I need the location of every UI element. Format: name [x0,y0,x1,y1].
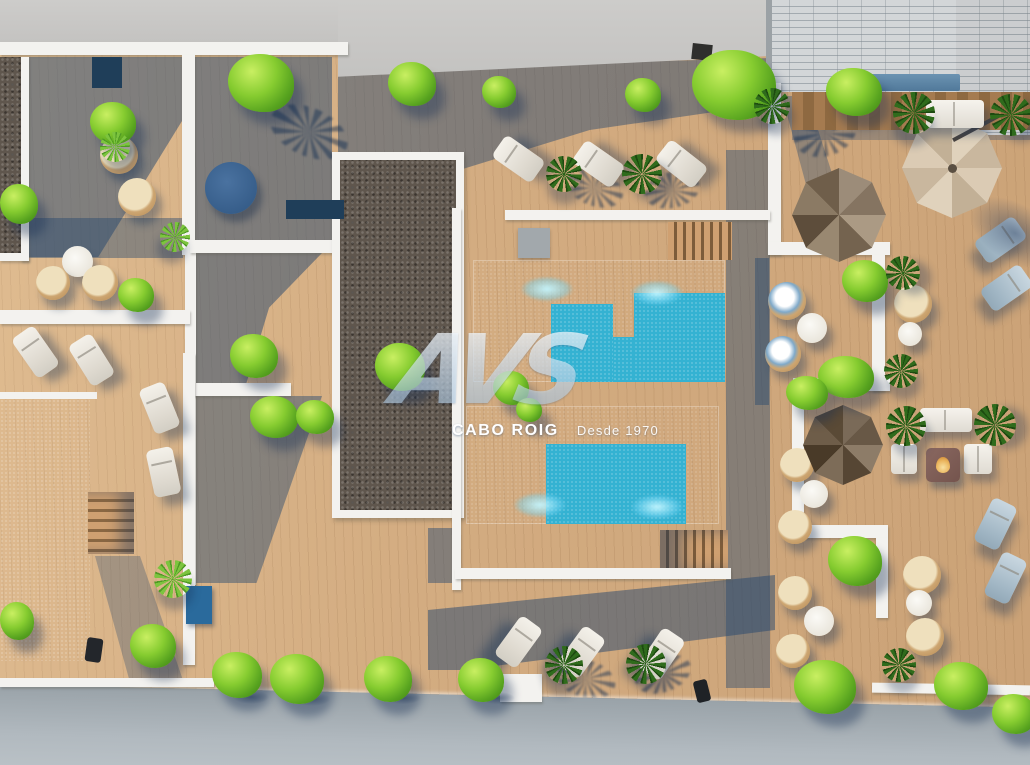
bush [828,536,882,586]
bush [842,260,888,302]
deck-chair-black [84,637,103,663]
round-table-shaded [205,162,257,214]
white-parapet-wall [193,383,291,396]
gravel-bed-border [21,57,29,261]
round-table [800,480,828,508]
sun-lounger [11,325,61,380]
wicker-chair [118,178,156,216]
round-table [797,313,827,343]
wicker-chair [906,618,944,656]
fire-pit-table [926,448,960,482]
white-parapet-wall [0,42,348,55]
wicker-chair [903,556,941,594]
rooftop-aerial-render: AVS CABO ROIG Desde 1970 [0,0,1030,765]
water-light-reflection [621,276,693,310]
bush [388,62,436,106]
sun-lounger [138,381,181,436]
deck-steps [668,222,732,260]
sun-lounger [67,332,115,387]
white-parapet-wall [190,240,336,253]
lap-pool-coping [0,392,97,399]
sun-lounger [973,497,1018,552]
bush [250,396,298,438]
bush [230,334,278,378]
terrace-doorway [92,57,122,88]
shade-overlay [428,570,775,670]
sun-lounger [983,551,1028,606]
wicker-chair [82,265,118,301]
bush [482,76,516,108]
white-parapet-wall [0,310,190,324]
equipment-mat [518,228,550,258]
bush [270,654,324,704]
bush [934,662,988,710]
gravel-bed-border [0,253,29,261]
spiral-staircase [803,405,883,485]
watermark-logo: AVS CABO ROIG Desde 1970 [402,316,702,440]
wicker-chair [776,634,810,668]
wicker-chair [778,576,812,610]
wicker-chair [36,266,70,300]
storage-bench [286,200,344,219]
brand-monogram: AVS [402,316,592,421]
wicker-chair-cushioned [768,282,806,320]
outdoor-armchair [964,444,992,474]
bush [794,660,856,714]
round-table [906,590,932,616]
sun-lounger [145,446,181,499]
wicker-chair [778,510,812,544]
bush [826,68,882,116]
shade-overlay [755,258,769,405]
concrete-roof [0,0,348,46]
bush [625,78,661,112]
outdoor-armchair [891,444,917,474]
wicker-chair-cushioned [765,336,801,372]
walkway-curb [0,678,214,687]
bush [130,624,176,668]
terrace-gate [186,586,212,624]
pool-platform-edge [505,210,770,220]
water-light-reflection [504,488,576,522]
outdoor-sofa [920,408,972,432]
water-light-reflection [621,490,693,524]
brand-text: CABO ROIG [452,422,559,440]
pool-terrace-edge [455,568,731,579]
deck-steps [660,530,728,572]
bush [228,54,294,112]
bush [364,656,412,702]
water-light-reflection [511,272,583,306]
bush [0,602,34,640]
bush [296,400,334,434]
monogram-text: AVS [378,314,594,426]
bush [458,658,504,702]
wicker-chair [894,285,932,323]
bush [212,652,262,698]
bush [118,278,154,312]
round-table [804,606,834,636]
bush [0,184,38,224]
bush [786,376,828,410]
deck-steps [88,492,134,554]
tagline-text: Desde 1970 [577,423,659,438]
round-table [898,322,922,346]
